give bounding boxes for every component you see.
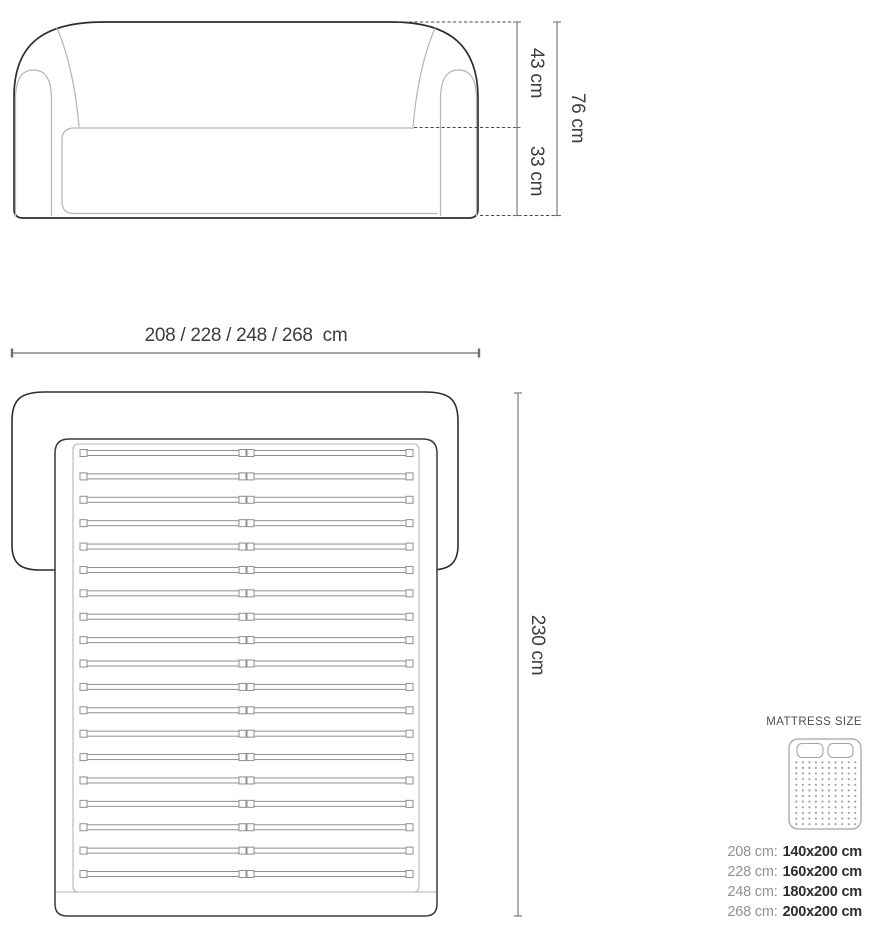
slat-row bbox=[80, 871, 413, 878]
size-row-label: 228 cm: bbox=[727, 862, 777, 882]
slat-row bbox=[80, 590, 413, 597]
size-row-value: 200x200 cm bbox=[783, 902, 862, 922]
size-row-label: 268 cm: bbox=[727, 902, 777, 922]
size-row-value: 140x200 cm bbox=[783, 842, 862, 862]
dim-label-total-height: 76 cm bbox=[566, 93, 588, 143]
slat-row bbox=[80, 473, 413, 480]
slat-row bbox=[80, 800, 413, 807]
sofa-bed-top-view bbox=[12, 392, 522, 916]
slat-row bbox=[80, 660, 413, 667]
size-row-label: 248 cm: bbox=[727, 882, 777, 902]
quilting-dots bbox=[795, 761, 858, 826]
pillow-left-icon bbox=[797, 744, 823, 758]
slat-row bbox=[80, 613, 413, 620]
slat-row bbox=[80, 707, 413, 714]
slat-row bbox=[80, 824, 413, 831]
slat-row bbox=[80, 543, 413, 550]
size-row: 208 cm: 140x200 cm bbox=[642, 842, 862, 862]
bed-frame-outline bbox=[55, 439, 437, 916]
slat-row bbox=[80, 496, 413, 503]
slat-row bbox=[80, 450, 413, 457]
slat-row bbox=[80, 754, 413, 761]
mattress-size-title: MATTRESS SIZE bbox=[662, 716, 862, 728]
size-row: 268 cm: 200x200 cm bbox=[642, 902, 862, 922]
size-row-value: 160x200 cm bbox=[783, 862, 862, 882]
pillow-right-icon bbox=[828, 744, 853, 758]
sofa-outline bbox=[14, 22, 478, 218]
slat-row bbox=[80, 520, 413, 527]
slat-row bbox=[80, 637, 413, 644]
dim-label-back-height: 43 cm bbox=[525, 48, 547, 98]
size-row-label: 208 cm: bbox=[727, 842, 777, 862]
size-row: 248 cm: 180x200 cm bbox=[642, 882, 862, 902]
mattress-icon bbox=[789, 739, 861, 829]
dimension-diagram: 43 cm 33 cm 76 cm 208 / 228 / 248 / 268 … bbox=[0, 0, 880, 930]
slat-row bbox=[80, 566, 413, 573]
size-row: 228 cm: 160x200 cm bbox=[642, 862, 862, 882]
dim-label-seat-height: 33 cm bbox=[525, 146, 547, 196]
width-dimension-line bbox=[12, 349, 479, 358]
mattress-size-list: 208 cm: 140x200 cm 228 cm: 160x200 cm 24… bbox=[642, 842, 862, 922]
slat-row bbox=[80, 683, 413, 690]
slat-row bbox=[80, 847, 413, 854]
slat-row bbox=[80, 730, 413, 737]
depth-dimension-line bbox=[514, 393, 522, 916]
size-row-value: 180x200 cm bbox=[783, 882, 862, 902]
slat-row bbox=[80, 777, 413, 784]
sofa-front-view bbox=[14, 22, 561, 218]
dim-label-width: 208 / 228 / 248 / 268 cm bbox=[145, 325, 348, 347]
dim-label-depth: 230 cm bbox=[526, 615, 548, 676]
line-art bbox=[0, 0, 880, 930]
